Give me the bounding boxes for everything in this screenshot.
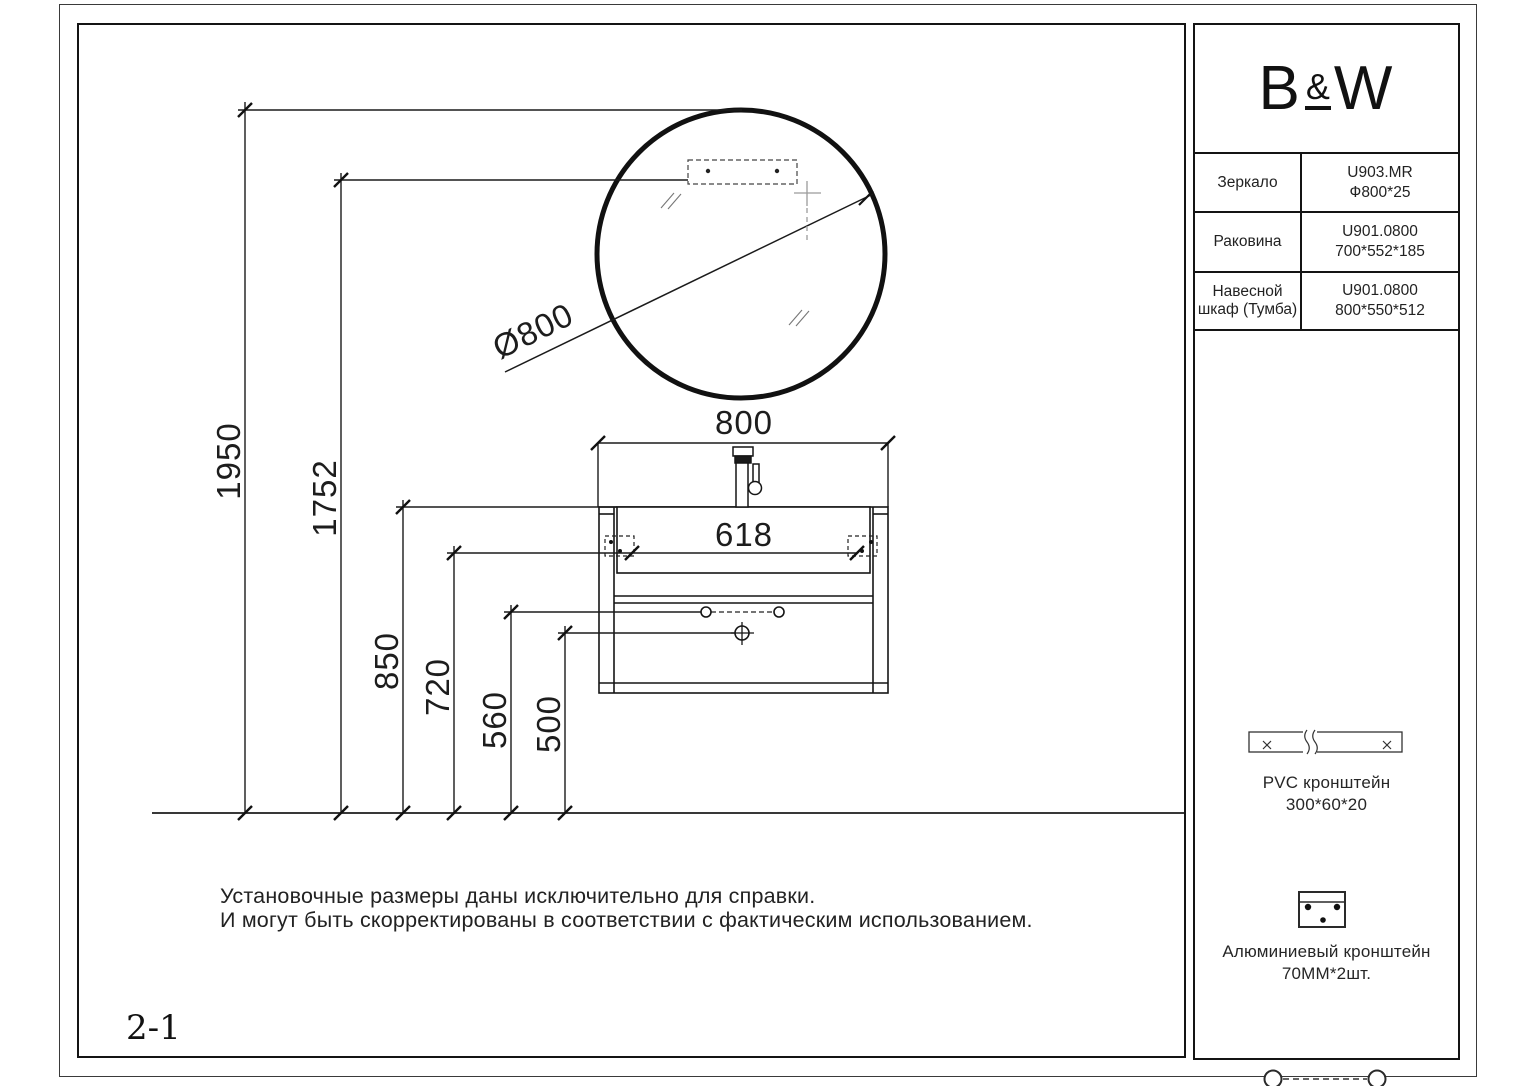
spec-value-mirror: U903.MR Ф800*25 <box>1302 154 1458 211</box>
spec-size-mirror: Ф800*25 <box>1350 183 1411 203</box>
spec-value-sink: U901.0800 700*552*185 <box>1302 213 1458 271</box>
spec-size-cabinet: 800*550*512 <box>1335 301 1425 321</box>
pvc-bracket-label: PVC кронштейн 300*60*20 <box>1195 772 1458 816</box>
spec-size-sink: 700*552*185 <box>1335 242 1425 262</box>
pvc-bracket-size: 300*60*20 <box>1195 794 1458 816</box>
legend-area: PVC кронштейн 300*60*20 Алюминиевый крон… <box>1195 331 1458 1086</box>
brand-logo: B & W <box>1195 25 1458 154</box>
reference-note: Установочные размеры даны исключительно … <box>220 884 1033 932</box>
spec-label-sink: Раковина <box>1195 213 1302 271</box>
brand-ampersand: & <box>1305 69 1331 110</box>
alu-bracket-size: 70ММ*2шт. <box>1195 963 1458 985</box>
spec-panel: B & W Зеркало U903.MR Ф800*25 Раковина U… <box>1193 23 1460 1060</box>
spec-value-cabinet: U901.0800 800*550*512 <box>1302 273 1458 329</box>
note-line-1: Установочные размеры даны исключительно … <box>220 884 1033 908</box>
water-supply-icon <box>1260 1067 1390 1086</box>
spec-row-mirror: Зеркало U903.MR Ф800*25 <box>1195 154 1458 213</box>
spec-row-cabinet: Навесной шкаф (Тумба) U901.0800 800*550*… <box>1195 273 1458 331</box>
spec-code-sink: U901.0800 <box>1342 222 1418 242</box>
spec-label-mirror: Зеркало <box>1195 154 1302 211</box>
drawing-sheet: 1950 1752 850 720 560 500 800 618 Ø800 У… <box>0 0 1536 1086</box>
note-line-2: И могут быть скорректированы в соответст… <box>220 908 1033 932</box>
sheet-number: 2-1 <box>126 1008 181 1048</box>
alu-bracket-name: Алюминиевый кронштейн <box>1195 941 1458 963</box>
spec-code-cabinet: U901.0800 <box>1342 281 1418 301</box>
spec-row-sink: Раковина U901.0800 700*552*185 <box>1195 213 1458 273</box>
pvc-bracket-icon <box>1247 729 1405 755</box>
spec-code-mirror: U903.MR <box>1347 163 1412 183</box>
brand-letter-b: B <box>1259 58 1302 120</box>
alu-bracket-label: Алюминиевый кронштейн 70ММ*2шт. <box>1195 941 1458 985</box>
brand-letter-w: W <box>1334 58 1395 120</box>
pvc-bracket-name: PVC кронштейн <box>1195 772 1458 794</box>
spec-label-cabinet: Навесной шкаф (Тумба) <box>1195 273 1302 329</box>
alu-bracket-icon <box>1297 890 1347 929</box>
